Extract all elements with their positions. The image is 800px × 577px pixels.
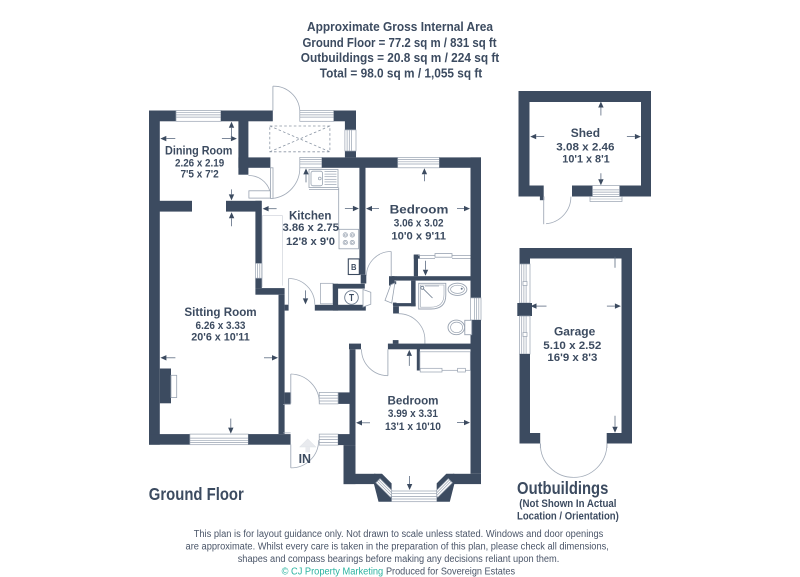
svg-text:B: B — [351, 262, 357, 272]
svg-text:Ground Floor = 77.2 sq m / 831: Ground Floor = 77.2 sq m / 831 sq ft — [303, 35, 498, 50]
svg-text:Shed: Shed — [571, 126, 600, 140]
svg-text:Outbuildings = 20.8 sq m / 224: Outbuildings = 20.8 sq m / 224 sq ft — [301, 50, 500, 65]
svg-text:Sitting Room: Sitting Room — [184, 305, 256, 319]
svg-text:Total = 98.0 sq m / 1,055 sq f: Total = 98.0 sq m / 1,055 sq ft — [320, 65, 483, 80]
svg-text:12'8 x 9'0: 12'8 x 9'0 — [286, 236, 335, 248]
svg-text:(Not Shown In Actual: (Not Shown In Actual — [519, 498, 616, 510]
svg-text:T: T — [349, 293, 354, 304]
svg-text:Bedroom: Bedroom — [390, 203, 449, 217]
svg-text:Outbuildings: Outbuildings — [517, 478, 609, 498]
svg-text:16'9 x 8'3: 16'9 x 8'3 — [547, 352, 597, 364]
svg-text:5.10 x 2.52: 5.10 x 2.52 — [543, 340, 601, 352]
svg-text:Location / Orientation): Location / Orientation) — [517, 511, 619, 523]
svg-text:20'6 x 10'11: 20'6 x 10'11 — [191, 332, 250, 344]
svg-text:IN: IN — [299, 451, 311, 466]
svg-text:13'1 x 10'10: 13'1 x 10'10 — [385, 421, 441, 433]
svg-text:This plan is for layout guidan: This plan is for layout guidance only. N… — [194, 529, 604, 540]
svg-text:© CJ Property Marketing: © CJ Property Marketing — [282, 566, 384, 577]
svg-text:6.26 x 3.33: 6.26 x 3.33 — [196, 320, 246, 332]
svg-text:are approximate. Whilst every: are approximate. Whilst every care is ta… — [186, 542, 609, 553]
svg-text:Dining Room: Dining Room — [165, 143, 232, 157]
svg-text:Ground Floor: Ground Floor — [149, 484, 244, 504]
svg-text:3.86 x 2.75: 3.86 x 2.75 — [282, 222, 339, 234]
svg-text:Kitchen: Kitchen — [289, 209, 332, 223]
svg-text:Bedroom: Bedroom — [388, 394, 439, 408]
svg-text:7'5 x 7'2: 7'5 x 7'2 — [180, 168, 218, 180]
svg-text:10'0 x 9'11: 10'0 x 9'11 — [391, 231, 446, 243]
svg-text:10'1 x 8'1: 10'1 x 8'1 — [562, 154, 610, 166]
svg-text:shapes and compass bearings be: shapes and compass bearings before makin… — [238, 554, 560, 565]
svg-text:3.08 x 2.46: 3.08 x 2.46 — [556, 141, 614, 153]
svg-text:3.99 x 3.31: 3.99 x 3.31 — [388, 408, 439, 420]
svg-text:Garage: Garage — [554, 325, 596, 339]
svg-text:Approximate Gross Internal Are: Approximate Gross Internal Area — [307, 19, 494, 34]
svg-text:3.06 x 3.02: 3.06 x 3.02 — [394, 217, 444, 229]
svg-text:Produced for Sovereign Estates: Produced for Sovereign Estates — [386, 566, 515, 577]
